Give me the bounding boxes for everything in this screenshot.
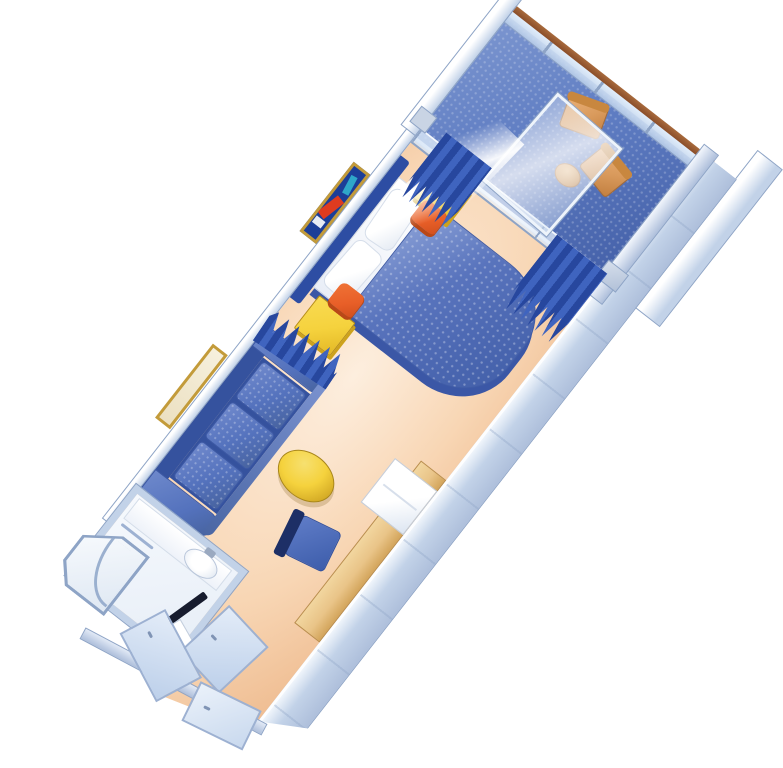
stateroom-floorplan bbox=[22, 6, 707, 768]
door-handle bbox=[147, 631, 153, 639]
art-shape bbox=[342, 175, 358, 196]
door-handle bbox=[210, 634, 217, 641]
door-handle bbox=[203, 705, 211, 711]
cabinet-seam bbox=[383, 484, 417, 511]
floorplan-canvas bbox=[0, 0, 783, 768]
